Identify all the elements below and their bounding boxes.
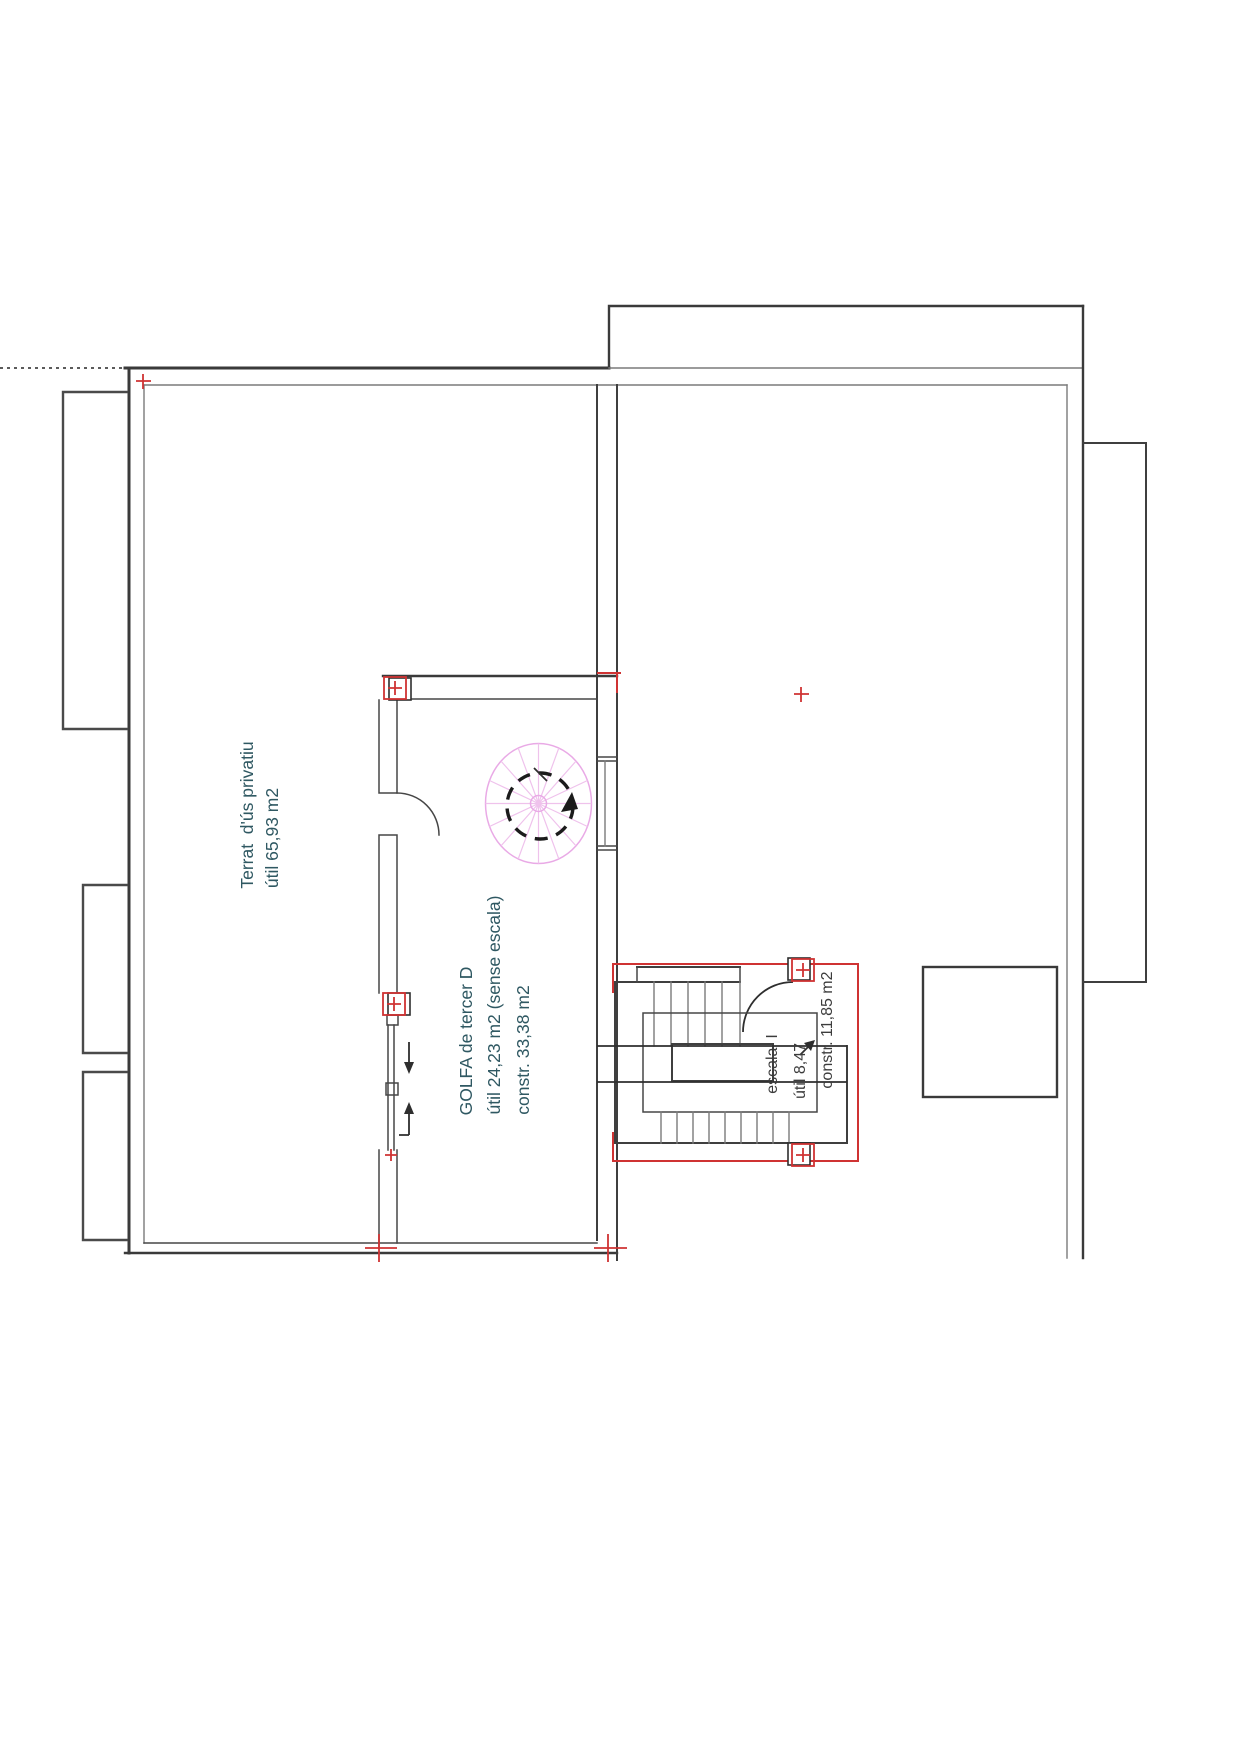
- red-cross-right-room: [794, 687, 809, 702]
- floor-plan-drawing: Terrat d'ús privatiu útil 65,93 m2 GOLFA…: [0, 0, 1240, 1755]
- roof-protrusion-outline: [609, 306, 1083, 368]
- marker-square-golfa-top: [384, 677, 411, 700]
- red-tick-railing: [385, 1149, 397, 1161]
- red-cross-wall-bottom: [594, 1234, 627, 1262]
- label-golfa-line3: constr. 33,38 m2: [513, 985, 533, 1114]
- railing-line: [388, 1025, 394, 1150]
- floor-plan-page: Terrat d'ús privatiu útil 65,93 m2 GOLFA…: [0, 0, 1240, 1755]
- marker-square-stair-bottom: [788, 1143, 814, 1166]
- outer-walls: [0, 306, 1146, 1258]
- golfa-door-arc: [397, 793, 439, 835]
- label-golfa-line2: útil 24,23 m2 (sense escala): [484, 896, 504, 1115]
- roof-shaft-square: [923, 967, 1057, 1097]
- railing-cap: [387, 1015, 398, 1025]
- red-cross-golfa-bottom-left: [365, 1234, 397, 1262]
- stair-enclosure-bottom-right: [615, 1046, 847, 1143]
- arrow-up-icon: [399, 1102, 414, 1135]
- label-escala-line3: constr. 11,85 m2: [819, 971, 836, 1088]
- label-escala-line1: escala I: [764, 1034, 781, 1094]
- arrow-down-icon: [404, 1042, 414, 1074]
- window-sills: [597, 757, 617, 850]
- golfa-left-wall-bottom: [379, 1150, 397, 1247]
- stair-door-arc: [743, 982, 793, 1032]
- stair-notch-connectors: [637, 967, 740, 982]
- balcony-top: [63, 392, 127, 729]
- balcony-bottom: [83, 1072, 127, 1240]
- balconies: [63, 392, 127, 1240]
- balcony-middle: [83, 885, 127, 1053]
- marker-square-golfa-left: [383, 993, 410, 1015]
- label-terrat-line2: útil 65,93 m2: [262, 788, 282, 888]
- wall-window: [597, 757, 617, 850]
- label-escala-line2: útil 8,47: [792, 1043, 809, 1099]
- stair-flight-dividers: [597, 1046, 847, 1082]
- stair-lower-steps: [661, 1112, 789, 1143]
- stair-upper-steps: [654, 982, 740, 1046]
- right-attached-volume: [1083, 443, 1146, 982]
- stair-well-opening: [672, 1044, 773, 1081]
- stair-landing-outline: [643, 1013, 817, 1112]
- label-golfa-line1: GOLFA de tercer D: [456, 967, 476, 1116]
- spiral-staircase: [486, 744, 592, 864]
- red-cross-top-left: [136, 374, 151, 389]
- label-terrat-line1: Terrat d'ús privatiu: [237, 741, 257, 888]
- marker-square-stair-top: [788, 958, 814, 981]
- golfa-left-wall-upper: [379, 700, 397, 793]
- spiral-direction-arrowhead-icon: [561, 792, 578, 812]
- golfa-left-wall-lower: [379, 835, 397, 993]
